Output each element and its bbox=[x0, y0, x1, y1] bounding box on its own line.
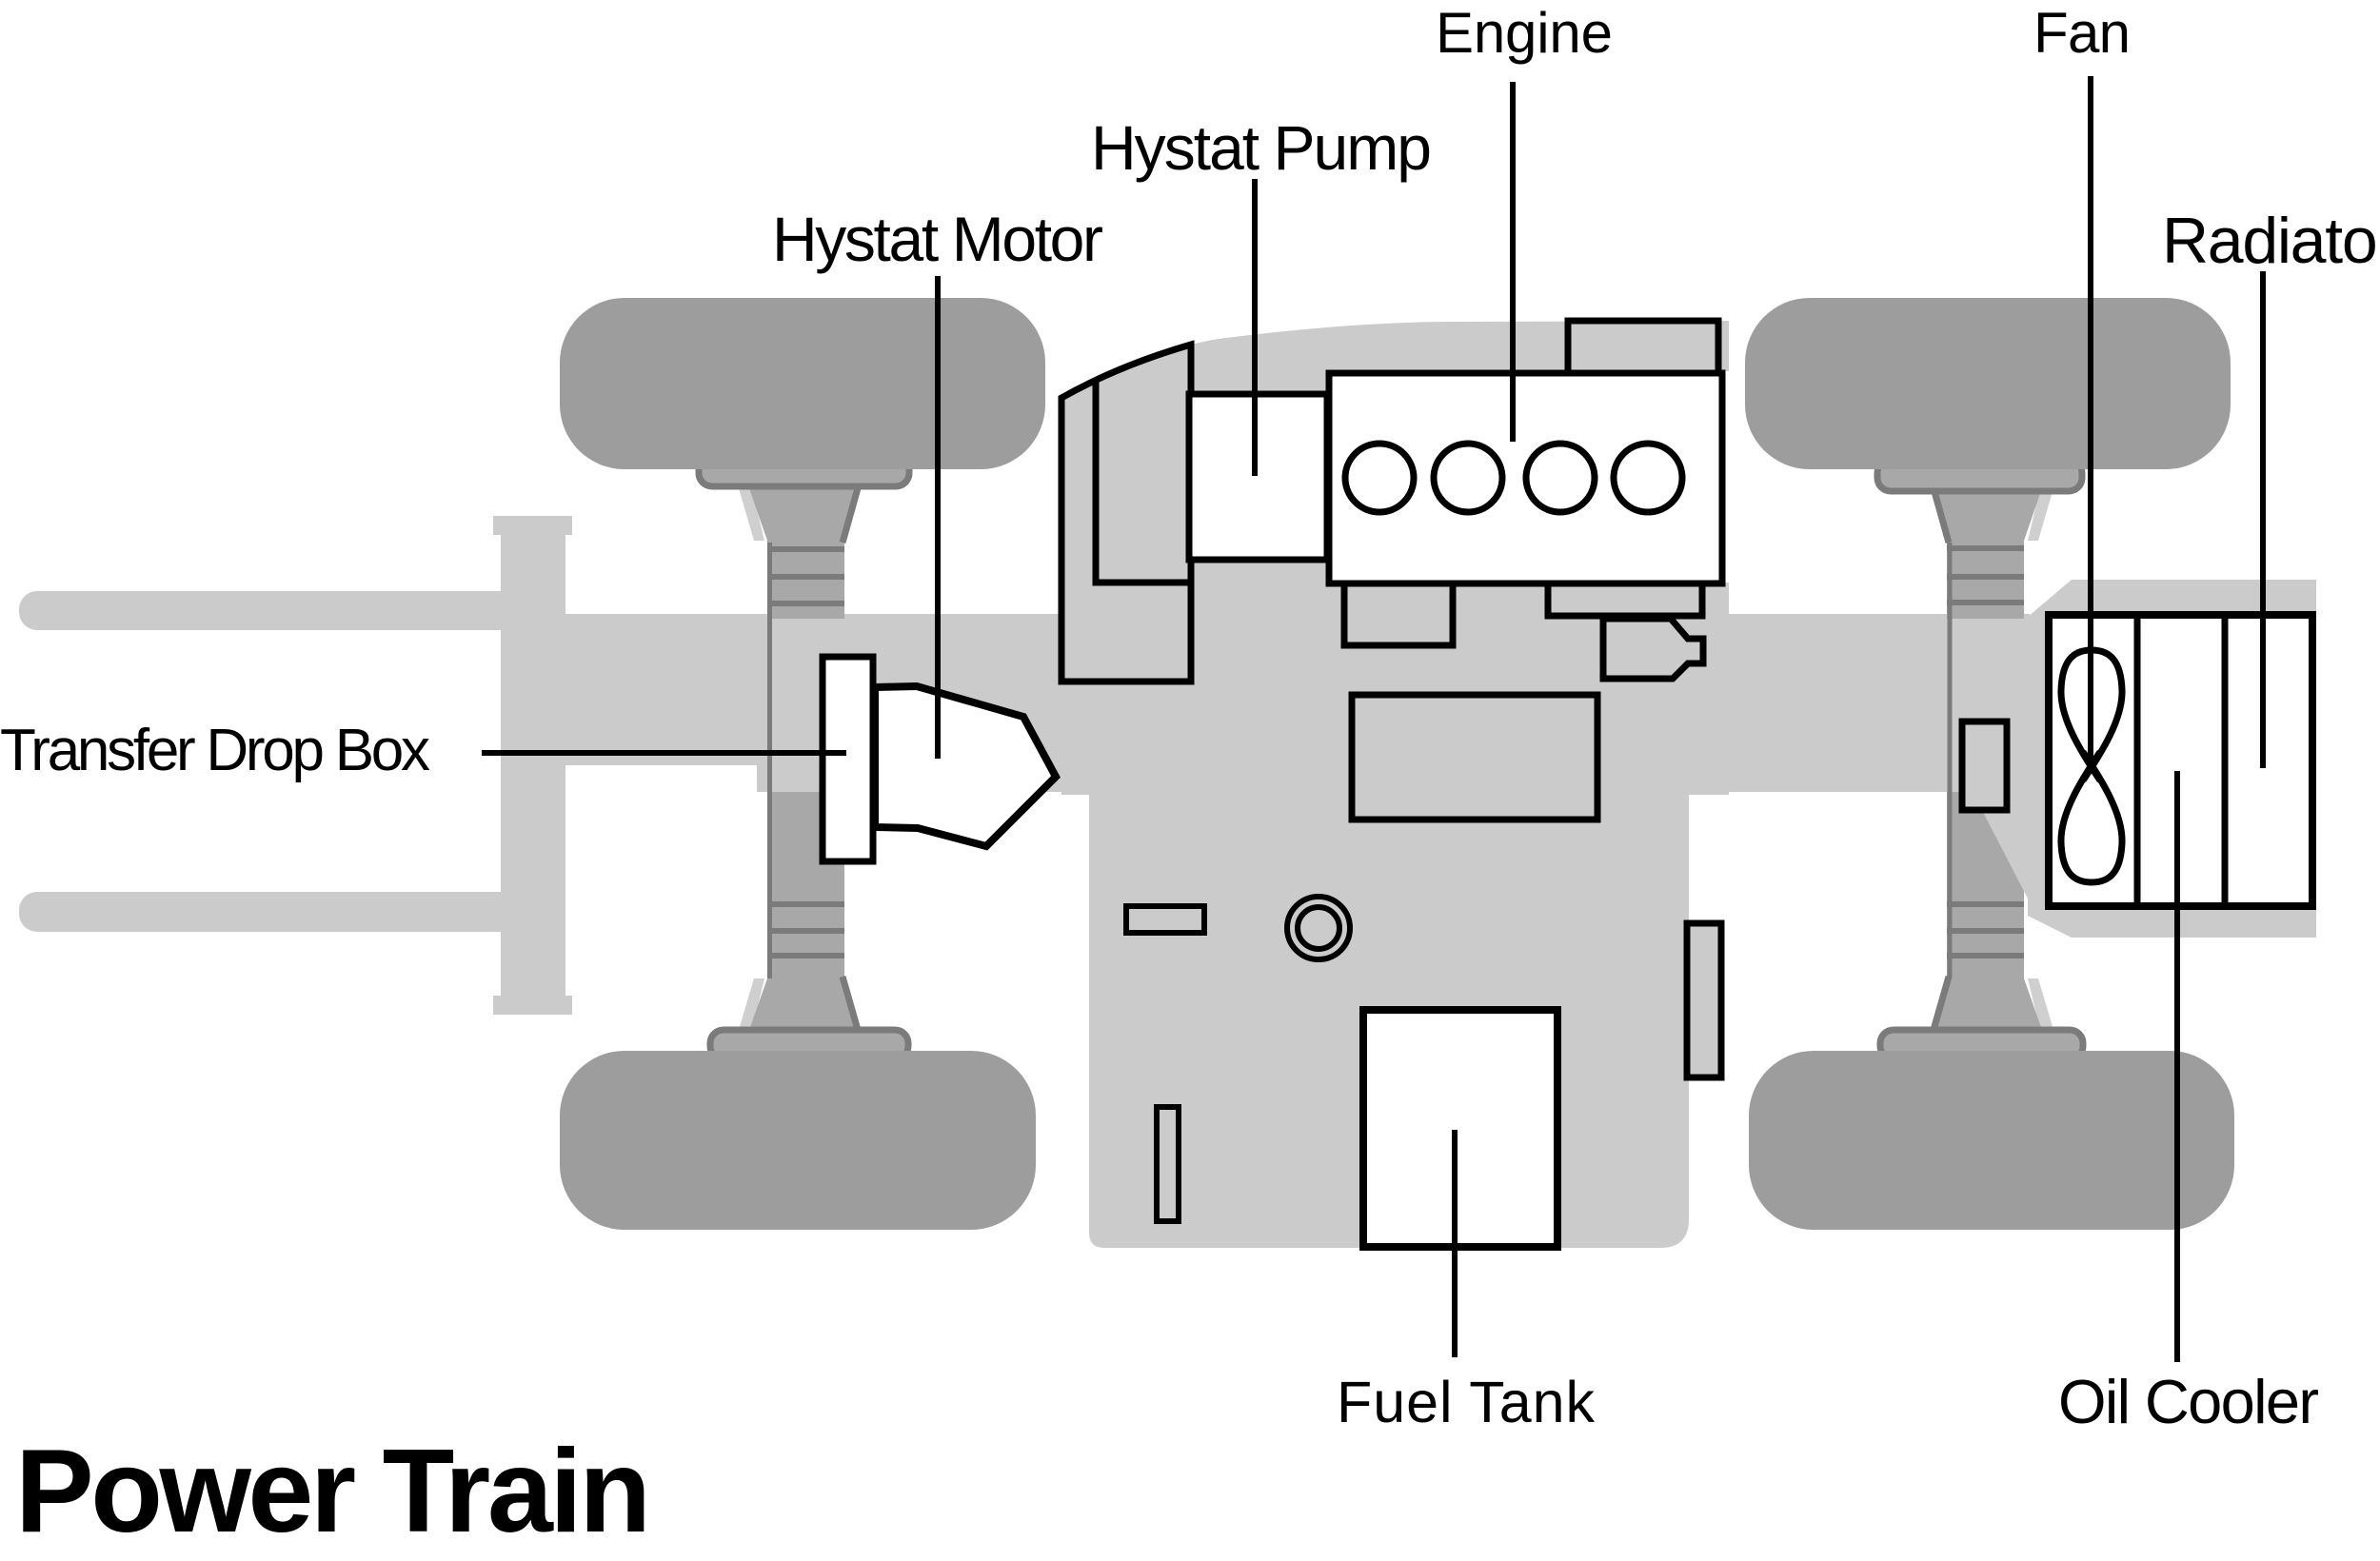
svg-text:Hystat Pump: Hystat Pump bbox=[1091, 112, 1432, 183]
svg-text:Oil Cooler: Oil Cooler bbox=[2058, 1367, 2319, 1436]
svg-text:Engine: Engine bbox=[1436, 1, 1613, 65]
svg-text:Transfer Drop Box: Transfer Drop Box bbox=[0, 718, 430, 783]
svg-text:Fan: Fan bbox=[2033, 1, 2131, 65]
svg-text:Radiator: Radiator bbox=[2162, 205, 2380, 277]
svg-text:Power Train: Power Train bbox=[15, 1426, 651, 1557]
svg-text:Hystat Motor: Hystat Motor bbox=[772, 204, 1103, 274]
svg-text:Fuel Tank: Fuel Tank bbox=[1337, 1370, 1596, 1434]
